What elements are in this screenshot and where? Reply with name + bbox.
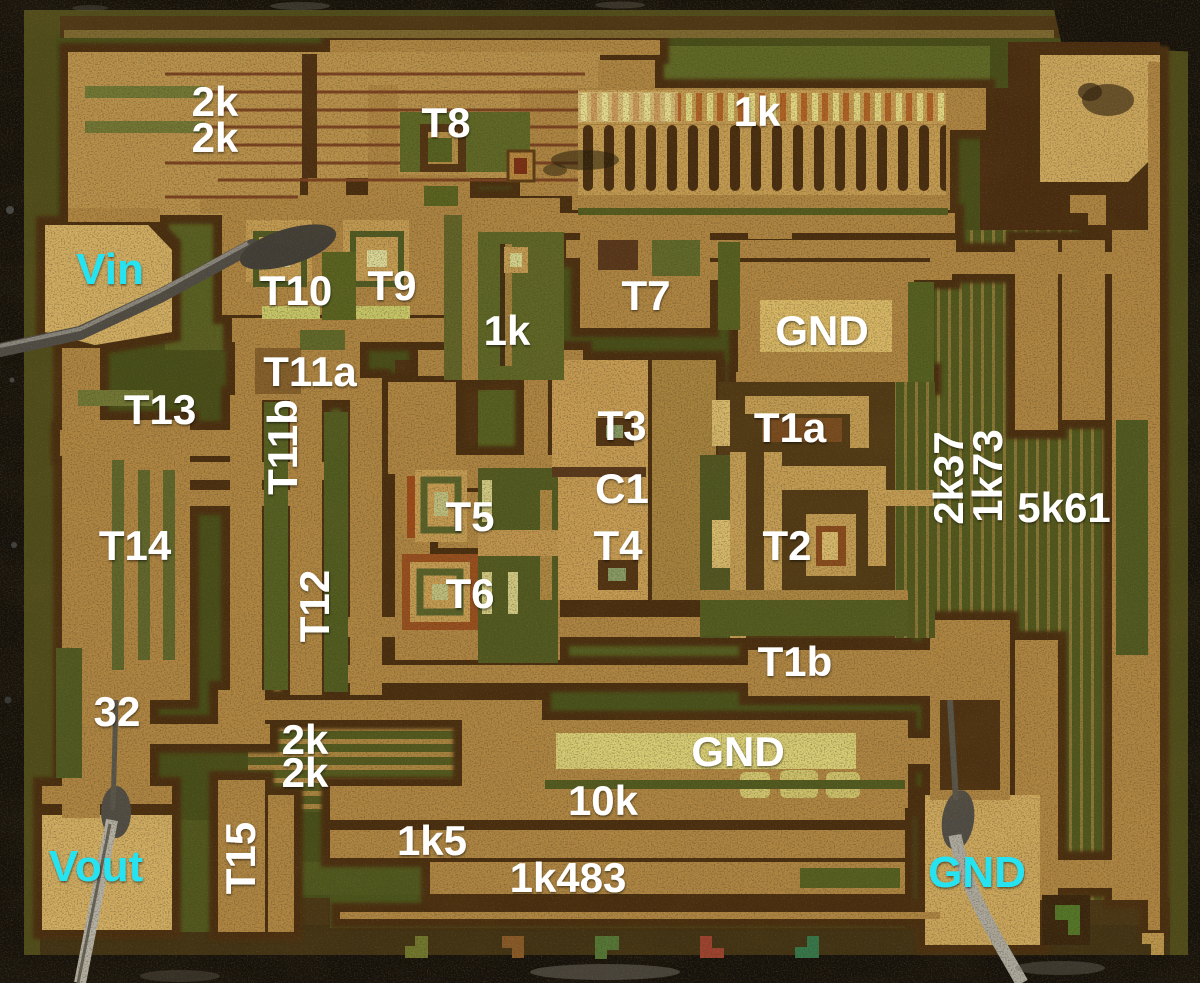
svg-text:5k61: 5k61	[1017, 484, 1110, 531]
svg-text:T4: T4	[593, 522, 643, 569]
svg-text:1k: 1k	[734, 88, 781, 135]
svg-text:C1: C1	[595, 465, 649, 512]
svg-text:T13: T13	[124, 386, 196, 433]
svg-text:Vout: Vout	[49, 842, 144, 891]
svg-text:T12: T12	[291, 570, 338, 642]
svg-text:1k73: 1k73	[964, 429, 1011, 522]
svg-text:T7: T7	[621, 272, 670, 319]
svg-text:GND: GND	[691, 728, 784, 775]
svg-text:GND: GND	[775, 307, 868, 354]
svg-text:T11b: T11b	[259, 399, 306, 495]
svg-text:T5: T5	[445, 493, 494, 540]
svg-text:T15: T15	[217, 822, 264, 894]
svg-text:T1a: T1a	[754, 404, 827, 451]
svg-text:T11a: T11a	[263, 348, 357, 395]
svg-text:2k: 2k	[282, 749, 329, 796]
svg-text:2k: 2k	[192, 114, 239, 161]
svg-text:1k5: 1k5	[397, 817, 467, 864]
svg-text:T6: T6	[445, 570, 494, 617]
svg-text:T3: T3	[597, 402, 646, 449]
svg-text:1k: 1k	[484, 307, 531, 354]
svg-text:T1b: T1b	[758, 638, 833, 685]
svg-text:GND: GND	[928, 848, 1026, 897]
svg-text:T9: T9	[367, 262, 416, 309]
svg-text:T14: T14	[99, 522, 172, 569]
svg-text:32: 32	[94, 688, 141, 735]
svg-text:T2: T2	[762, 522, 811, 569]
svg-text:10k: 10k	[568, 777, 639, 824]
svg-text:T8: T8	[421, 99, 470, 146]
svg-text:Vin: Vin	[76, 245, 144, 294]
svg-text:T10: T10	[260, 267, 332, 314]
svg-text:1k483: 1k483	[510, 854, 627, 901]
